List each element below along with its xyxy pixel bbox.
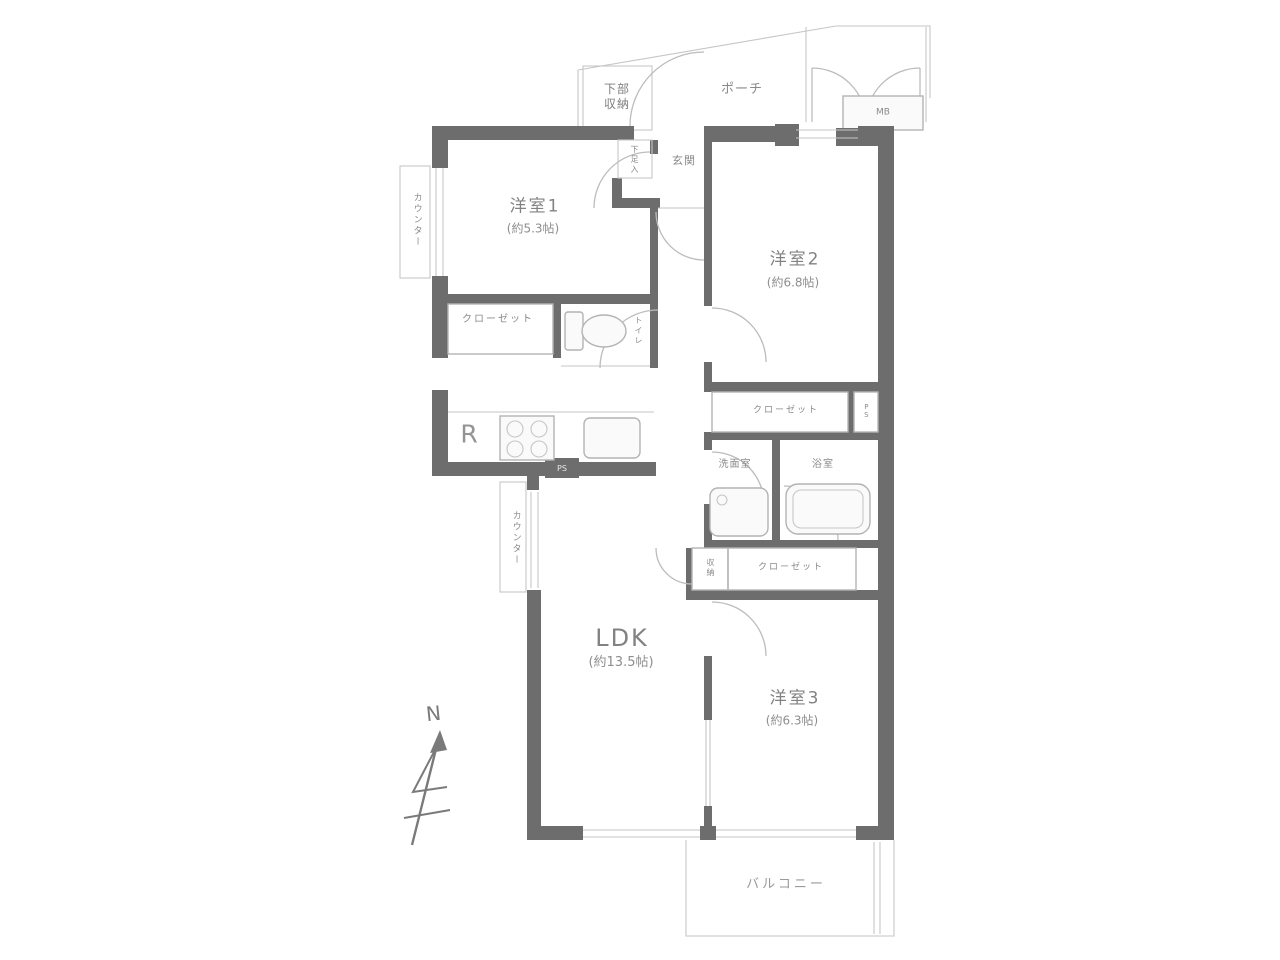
closet1-label: クローゼット bbox=[462, 314, 534, 327]
wall-segment bbox=[704, 126, 796, 142]
western1-name: 洋室1 bbox=[510, 196, 561, 217]
toilet-tank bbox=[565, 312, 583, 350]
wall-segment bbox=[650, 140, 658, 154]
meter-box-label: MB bbox=[876, 107, 890, 118]
western2-size: (約6.8帖) bbox=[767, 276, 819, 291]
walls bbox=[432, 126, 894, 840]
north-arrow bbox=[404, 730, 450, 845]
balcony-label: バルコニー bbox=[746, 877, 826, 893]
wall-segment bbox=[650, 304, 658, 368]
kitchen-sink bbox=[584, 418, 640, 458]
lower-storage-line1: 下部 bbox=[604, 82, 630, 97]
refrigerator-label: R bbox=[460, 418, 477, 449]
storage-label: 収納 bbox=[705, 558, 715, 578]
north-label: N bbox=[425, 701, 443, 728]
windows bbox=[436, 130, 858, 837]
western2-name: 洋室2 bbox=[770, 249, 821, 270]
north-arrow-tick bbox=[404, 810, 450, 818]
counter-ldk-label: カウンター bbox=[509, 511, 520, 566]
western1-size: (約5.3帖) bbox=[507, 222, 559, 237]
ldk-name: LDK bbox=[595, 623, 649, 653]
entrance-label: 玄関 bbox=[672, 154, 696, 168]
lower-storage-line2: 収納 bbox=[604, 97, 630, 112]
wall-segment bbox=[704, 208, 712, 306]
wall-segment bbox=[432, 126, 634, 140]
wall-segment bbox=[704, 540, 894, 548]
wall-segment bbox=[856, 826, 894, 840]
lower-storage-label: 下部 収納 bbox=[604, 82, 630, 112]
bathtub bbox=[786, 484, 870, 534]
toilet-label: トイレ bbox=[633, 316, 643, 346]
washroom-label: 洗面室 bbox=[719, 459, 752, 472]
floor-plan-drawing bbox=[0, 0, 1280, 960]
western3-door-arc bbox=[712, 602, 766, 656]
wall-segment bbox=[432, 462, 656, 476]
wall-segment bbox=[704, 440, 712, 450]
wall-segment bbox=[686, 590, 894, 600]
western3-size: (約6.3帖) bbox=[766, 714, 818, 729]
closet1-box bbox=[448, 304, 553, 354]
bathroom-label: 浴室 bbox=[812, 459, 834, 472]
door-arcs bbox=[594, 152, 838, 656]
balcony-divider-lines bbox=[874, 842, 880, 934]
wall-segment bbox=[704, 656, 712, 720]
window-ldk-west bbox=[531, 492, 538, 588]
wall-segment bbox=[704, 382, 894, 392]
counter-west-label: カウンター bbox=[410, 193, 421, 248]
western3-name: 洋室3 bbox=[770, 688, 821, 709]
floor-plan: 下部 収納 ポーチ MB 下足入 玄関 カウンター 洋室1 (約5.3帖) 洋室… bbox=[0, 0, 1280, 960]
wash-basin bbox=[710, 488, 768, 536]
wall-segment bbox=[878, 126, 894, 840]
wall-segment bbox=[772, 440, 780, 540]
wall-segment bbox=[432, 276, 448, 358]
wall-segment bbox=[527, 476, 539, 490]
sliding-partition bbox=[706, 720, 710, 806]
shoe-cabinet-label: 下足入 bbox=[629, 145, 639, 175]
closet2-label: クローゼット bbox=[753, 405, 819, 416]
ldk-size: (約13.5帖) bbox=[588, 655, 653, 671]
wall-segment bbox=[527, 590, 541, 826]
wall-segment bbox=[704, 362, 712, 382]
pipe-space-label: PS bbox=[862, 403, 871, 419]
wall-segment bbox=[527, 826, 583, 840]
wall-segment bbox=[432, 126, 448, 168]
wall-segment bbox=[704, 432, 894, 440]
wall-segment bbox=[848, 392, 854, 432]
closet3-label: クローゼット bbox=[758, 562, 824, 573]
wall-segment bbox=[704, 806, 712, 826]
wall-segment bbox=[700, 826, 716, 840]
north-arrow-head bbox=[430, 730, 447, 753]
window-western3-south bbox=[716, 830, 856, 837]
western2-door-arc bbox=[712, 308, 766, 362]
window-ldk-south bbox=[583, 830, 700, 837]
pipe-space-kitchen-label: PS bbox=[548, 461, 576, 475]
front-door-arc bbox=[630, 52, 704, 126]
hall-door-arc bbox=[656, 212, 704, 260]
porch-label: ポーチ bbox=[721, 82, 763, 98]
toilet-bowl bbox=[582, 315, 626, 347]
wall-segment bbox=[612, 198, 660, 208]
wall-segment bbox=[553, 300, 561, 358]
window-west bbox=[436, 168, 443, 276]
